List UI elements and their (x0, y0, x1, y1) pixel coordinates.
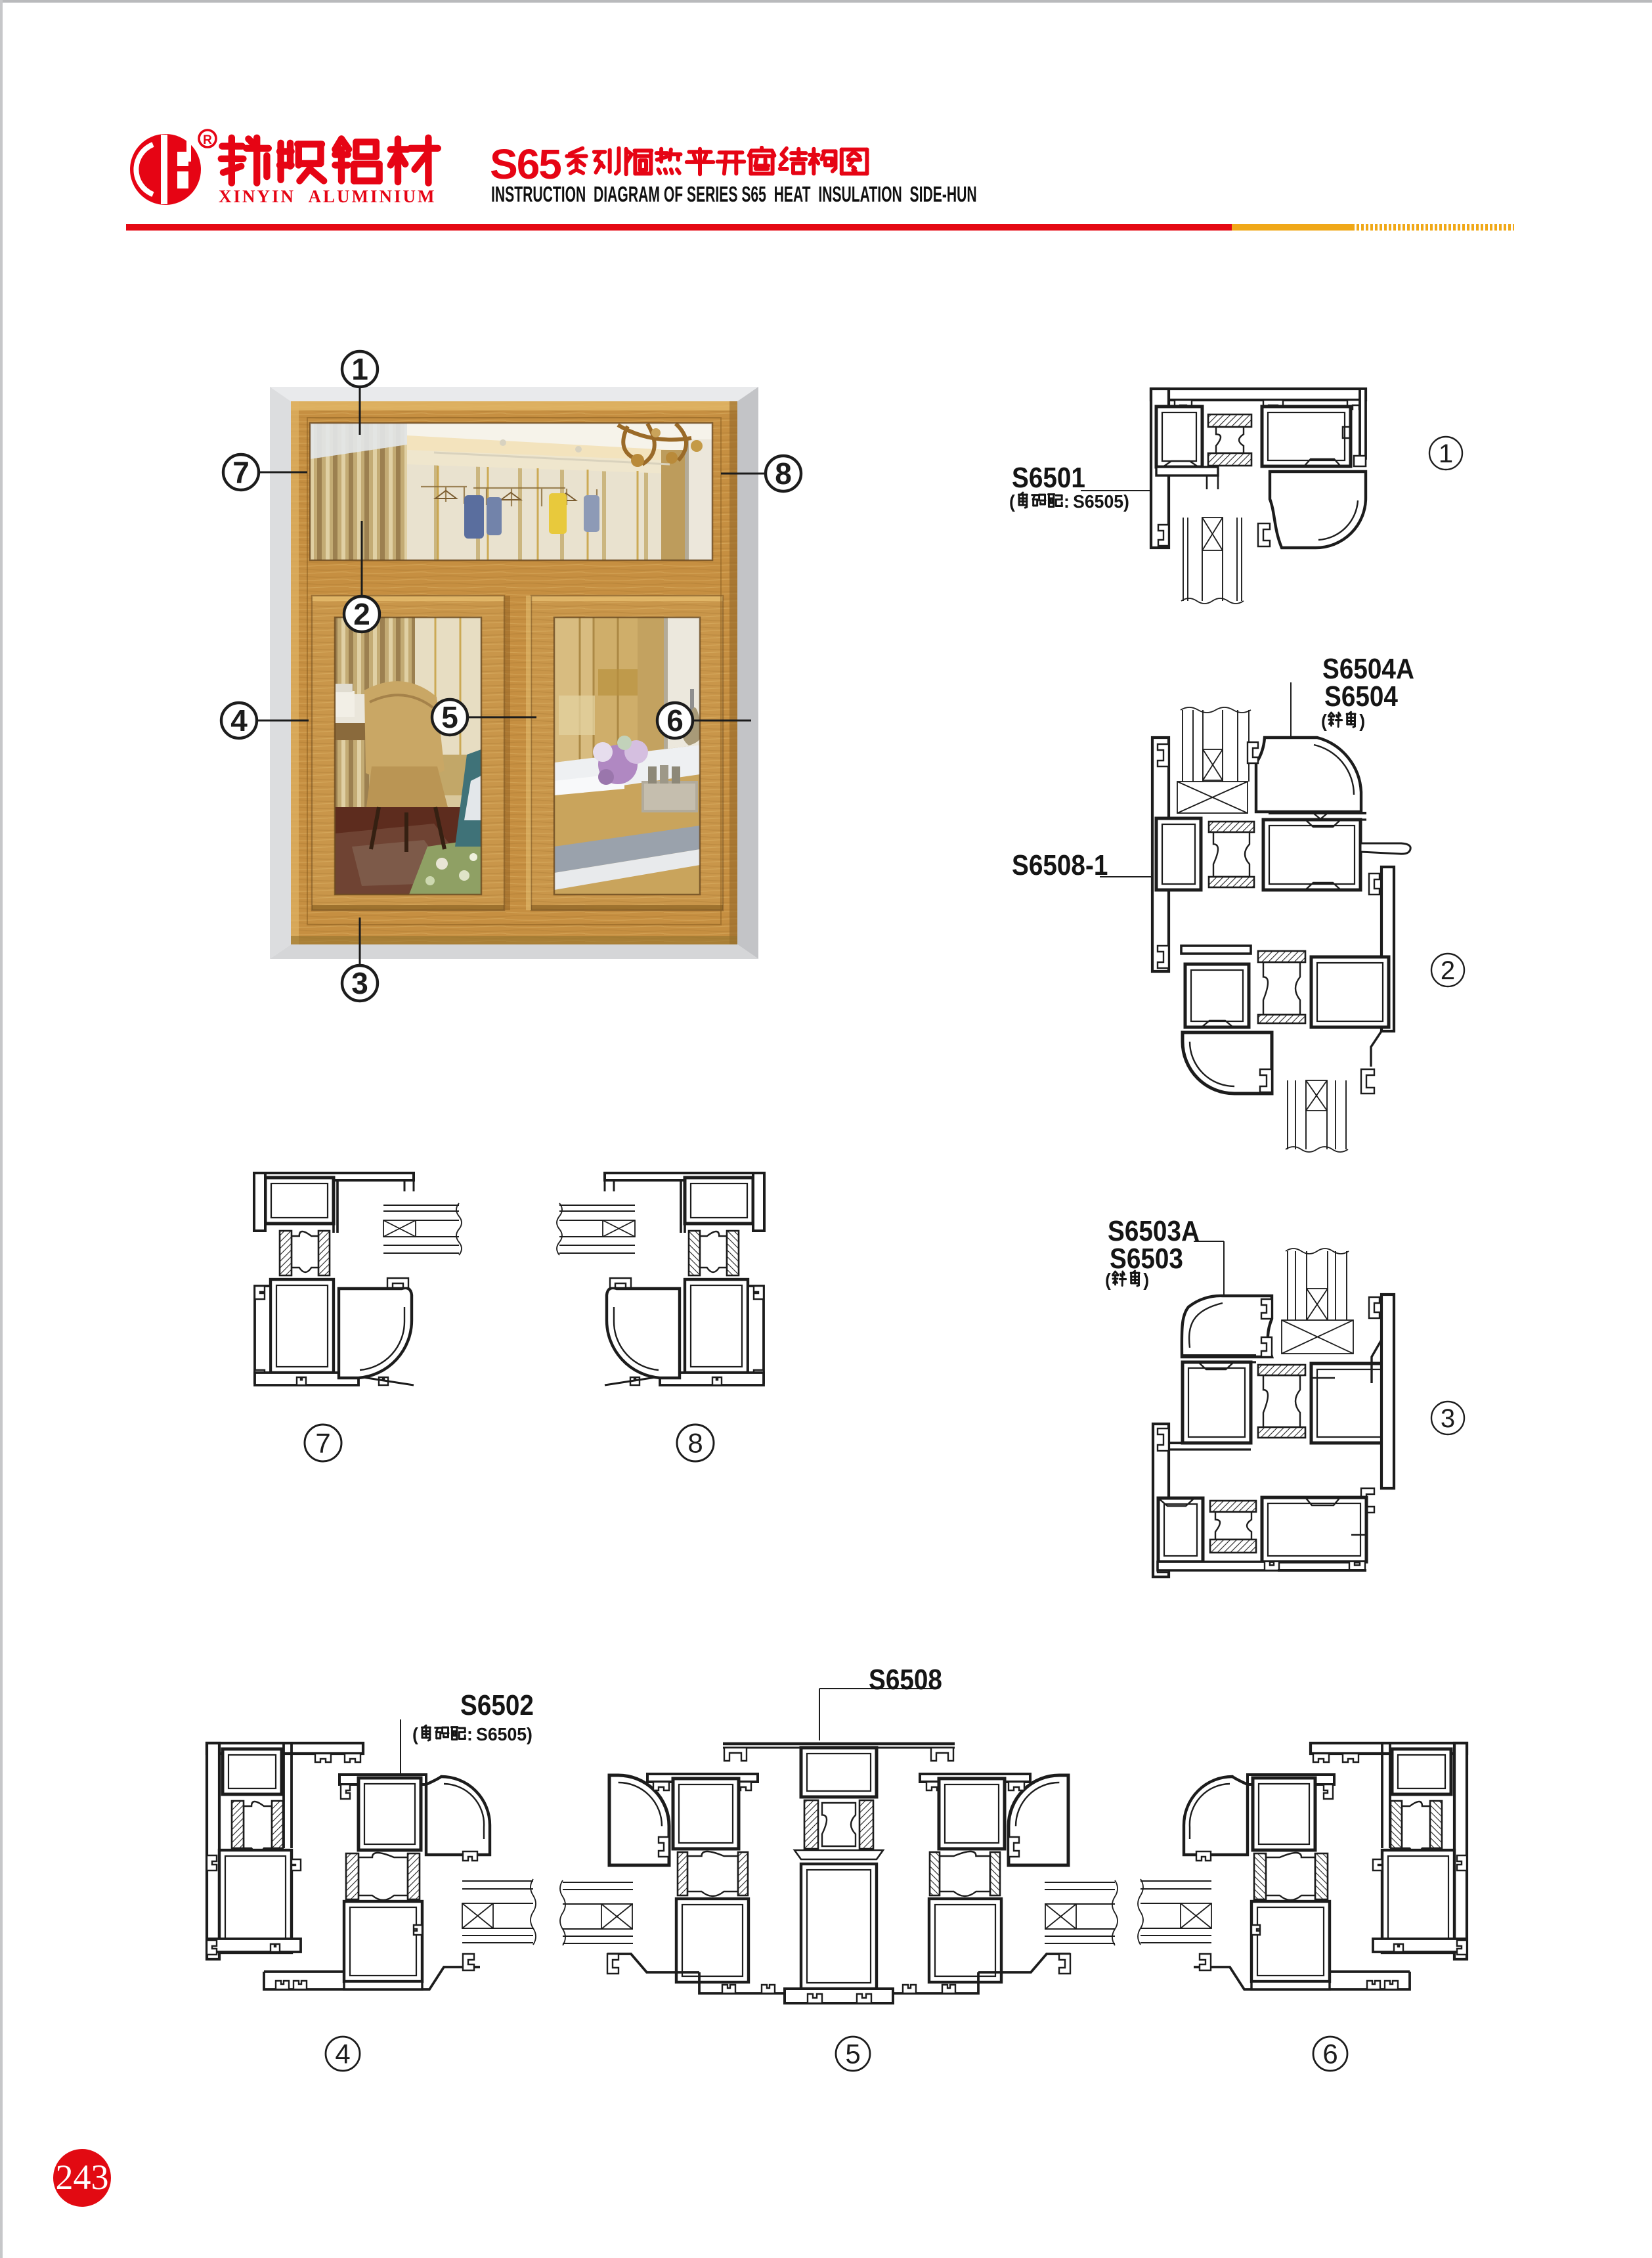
svg-text:8: 8 (687, 1427, 703, 1458)
svg-text:3: 3 (351, 966, 368, 1000)
svg-text:3: 3 (1441, 1404, 1455, 1433)
svg-text:4: 4 (230, 703, 248, 738)
svg-text:2: 2 (353, 597, 370, 631)
svg-text:6: 6 (1322, 2038, 1337, 2069)
svg-text:5: 5 (845, 2038, 860, 2069)
svg-text:5: 5 (441, 700, 458, 734)
svg-text:1: 1 (1439, 439, 1453, 468)
svg-text:7: 7 (232, 455, 250, 489)
svg-text:6: 6 (666, 703, 684, 738)
svg-text:2: 2 (1441, 956, 1455, 985)
svg-text:1: 1 (351, 352, 368, 386)
svg-text:8: 8 (775, 456, 792, 491)
svg-text:7: 7 (315, 1427, 330, 1458)
svg-text:4: 4 (335, 2038, 350, 2069)
